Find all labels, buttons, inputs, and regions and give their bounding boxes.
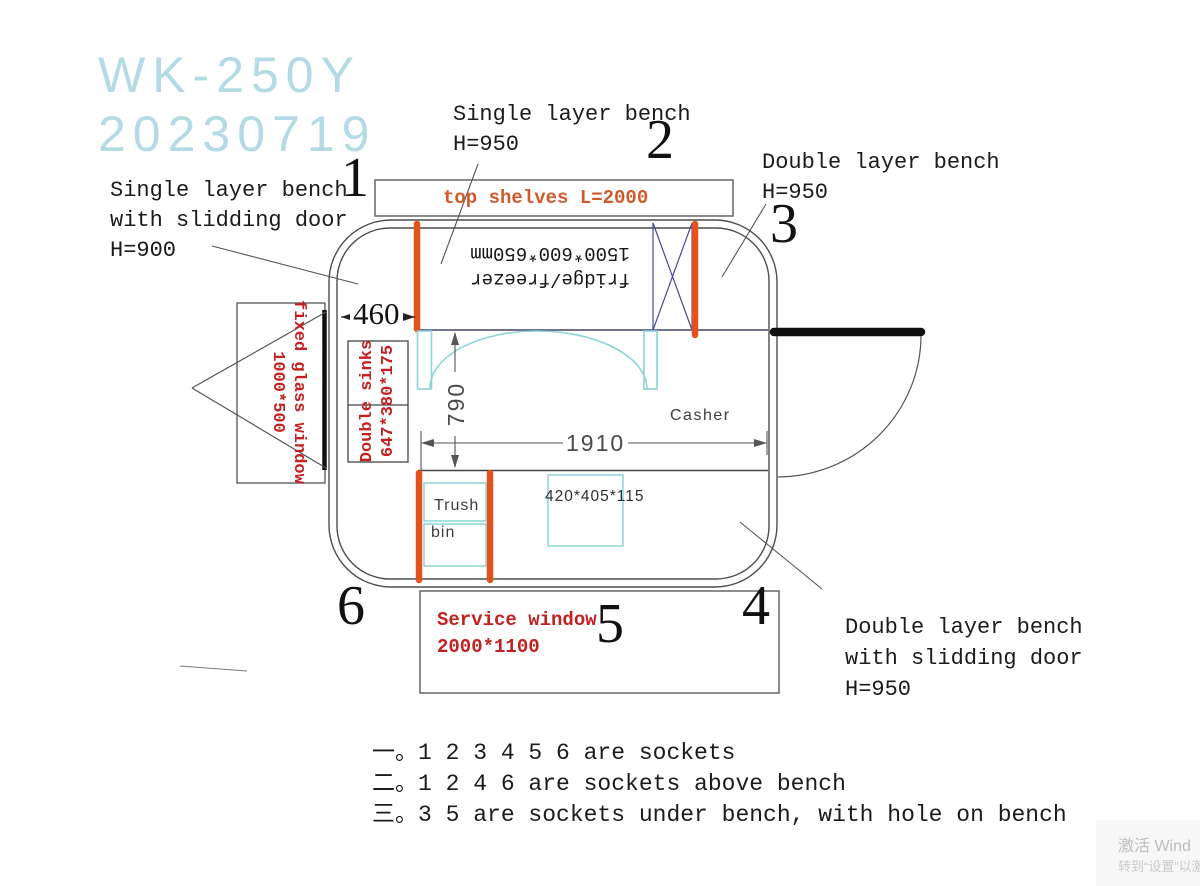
label-fixed-glass-line2: 1000*500 — [267, 292, 288, 492]
label-bench-bottom-right: Double layer bench with slidding door H=… — [845, 612, 1083, 705]
dim-1910-arrow-right — [754, 439, 767, 447]
dim-790-arrow-top — [451, 332, 459, 345]
socket-marker-5: 5 — [596, 596, 624, 652]
label-top-shelves: top shelves L=2000 — [443, 187, 648, 209]
label-bench-top-left-line2: with slidding door — [110, 206, 348, 236]
stray-line — [180, 666, 247, 671]
watermark-activate: 激活 Wind — [1118, 832, 1191, 856]
label-fixed-glass-window: fixed glass window 1000*500 — [267, 292, 309, 492]
label-fixed-glass-line1: fixed glass window — [288, 292, 309, 492]
note-line-3: 三。3 5 are sockets under bench, with hole… — [372, 800, 1067, 831]
floorplan-canvas: WK-250Y 20230719 Single layer bench with… — [0, 0, 1200, 886]
box-420-outline — [548, 475, 623, 546]
label-fridge-line2: 1500*600*650mm — [430, 240, 670, 266]
label-fridge-line1: fridge/freezer — [430, 266, 670, 292]
dim-460-arrow-right — [403, 313, 415, 321]
dim-790-value: 790 — [444, 372, 468, 436]
label-fridge-freezer: fridge/freezer 1500*600*650mm — [430, 240, 670, 292]
label-box-420: 420*405*115 — [545, 488, 645, 506]
note-line-2: 二。1 2 4 6 are sockets above bench — [372, 769, 1067, 800]
dim-790-arrow-bottom — [451, 455, 459, 468]
label-casher: Casher — [670, 407, 731, 425]
drawing-title: WK-250Y 20230719 — [98, 46, 376, 164]
label-bench-top-left-line3: H=900 — [110, 236, 348, 266]
model-number: WK-250Y — [98, 46, 376, 105]
watermark-settings: 转到“设置”以激 — [1118, 856, 1200, 875]
socket-marker-1: 1 — [341, 150, 369, 206]
door-swing-arc-right — [537, 331, 647, 389]
label-double-sinks-line1: Double sinks — [357, 336, 378, 466]
label-double-sinks: Double sinks 647*380*175 — [357, 336, 399, 466]
socket-marker-2: 2 — [646, 112, 674, 168]
dim-1910-value: 1910 — [563, 430, 628, 456]
note-line-1: 一。1 2 3 4 5 6 are sockets — [372, 738, 1067, 769]
label-service-window-line1: Service window — [437, 607, 597, 634]
socket-marker-3: 3 — [770, 196, 798, 252]
label-bench-bottom-right-line2: with slidding door — [845, 643, 1083, 674]
leader-bench-right — [722, 204, 766, 277]
label-trush: Trush — [434, 497, 479, 515]
label-bench-bottom-right-line3: H=950 — [845, 674, 1083, 705]
door-post-left — [418, 331, 432, 389]
door-swing-arc — [778, 336, 921, 477]
socket-marker-6: 6 — [337, 578, 365, 634]
socket-marker-4: 4 — [742, 578, 770, 634]
label-bin: bin — [431, 524, 455, 542]
entry-door — [774, 332, 921, 477]
label-service-window-line2: 2000*1100 — [437, 634, 597, 661]
socket-notes: 一。1 2 3 4 5 6 are sockets 二。1 2 4 6 are … — [372, 738, 1067, 831]
label-service-window: Service window 2000*1100 — [437, 607, 597, 661]
label-bench-top-left-line1: Single layer bench — [110, 176, 348, 206]
label-bench-bottom-right-line1: Double layer bench — [845, 612, 1083, 643]
dim-460-value: 460 — [350, 298, 403, 329]
label-bench-right-line1: Double layer bench — [762, 148, 1000, 178]
label-bench-top-left: Single layer bench with slidding door H=… — [110, 176, 348, 266]
dim-1910-arrow-left — [421, 439, 434, 447]
label-double-sinks-line2: 647*380*175 — [378, 336, 399, 466]
drawing-date: 20230719 — [98, 105, 376, 164]
